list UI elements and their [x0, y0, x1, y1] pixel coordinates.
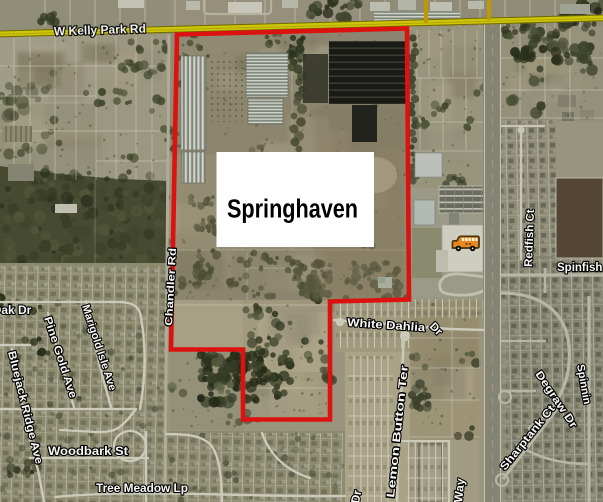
svg-text:Redfish Ct: Redfish Ct — [523, 209, 537, 267]
svg-text:Oak Dr: Oak Dr — [0, 303, 32, 317]
svg-text:Woodbark St: Woodbark St — [48, 444, 128, 458]
svg-text:Tree Meadow Lp: Tree Meadow Lp — [96, 481, 188, 495]
svg-text:Spinfish: Spinfish — [557, 262, 602, 274]
svg-text:W Kelly Park Rd: W Kelly Park Rd — [54, 22, 146, 39]
svg-text:Springhaven: Springhaven — [227, 196, 358, 224]
svg-text:Way: Way — [451, 477, 467, 502]
